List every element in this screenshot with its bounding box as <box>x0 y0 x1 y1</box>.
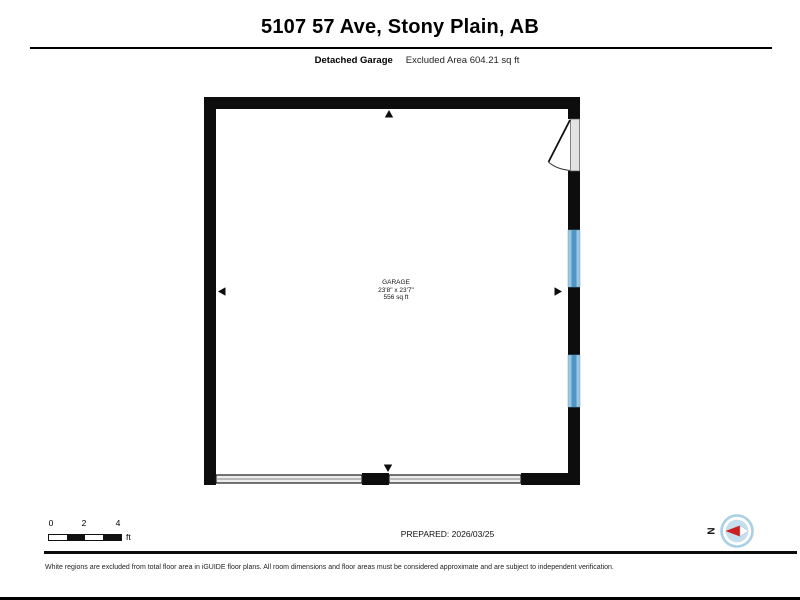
scale-tick-2: 2 <box>82 518 87 528</box>
wall-bottom-mid <box>362 473 389 485</box>
dimension-arrow-down-icon <box>384 465 392 473</box>
entry-door <box>549 119 580 171</box>
scale-tick-0: 0 <box>49 518 54 528</box>
door-panel <box>571 119 580 171</box>
garage-door-left <box>216 475 362 483</box>
wall-bottom-right <box>521 473 580 485</box>
wall-right-seg1 <box>568 97 580 119</box>
scale-segment <box>67 535 85 540</box>
wall-top <box>204 97 580 109</box>
dimension-arrow-left-icon <box>218 287 226 295</box>
door-swing-arc <box>549 162 571 171</box>
prepared-date: PREPARED: 2026/03/25 <box>330 529 565 539</box>
scale-rule <box>48 534 122 541</box>
garage-door-right <box>389 475 521 483</box>
door-leaf <box>549 120 571 162</box>
room-area: 556 sq ft <box>378 294 414 302</box>
floorplan-page: 5107 57 Ave, Stony Plain, AB Detached Ga… <box>0 0 800 600</box>
room-label: GARAGE 23'8" x 23'7" 556 sq ft <box>378 279 414 302</box>
scale-unit-label: ft <box>126 532 131 542</box>
wall-right-seg3 <box>568 287 580 355</box>
scale-segment <box>49 535 67 540</box>
scale-tick-4: 4 <box>116 518 121 528</box>
window-upper <box>568 230 580 287</box>
scale-segment <box>103 535 121 540</box>
dimension-arrow-up-icon <box>385 110 393 118</box>
footer-divider <box>44 551 797 554</box>
disclaimer-text: White regions are excluded from total fl… <box>45 564 765 571</box>
compass-icon: N <box>700 511 756 553</box>
scale-segment <box>85 535 103 540</box>
window-lower <box>568 355 580 407</box>
room-name: GARAGE <box>378 279 414 287</box>
room-dimensions: 23'8" x 23'7" <box>378 287 414 295</box>
wall-left <box>204 97 216 485</box>
dimension-arrow-right-icon <box>555 287 563 295</box>
wall-right-seg2 <box>568 171 580 230</box>
compass-north-label: N <box>707 527 718 534</box>
